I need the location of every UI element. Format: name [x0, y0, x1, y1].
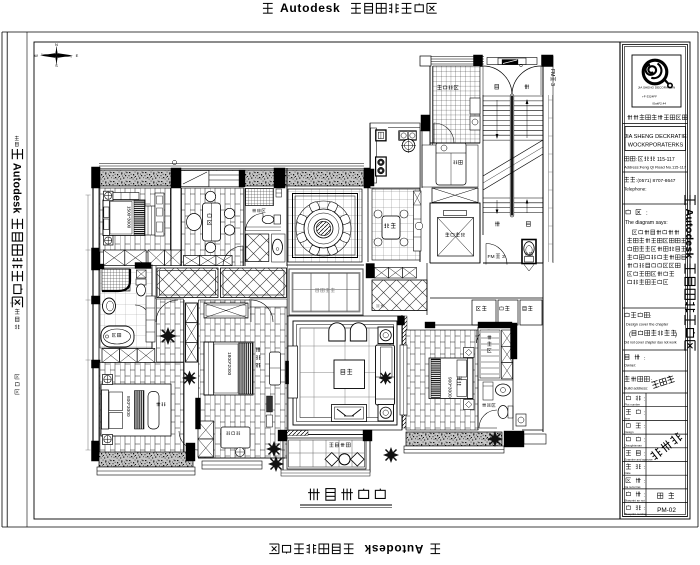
svg-text:JIA SHENG DECKRATIE: JIA SHENG DECKRATIE: [624, 134, 687, 140]
svg-text:Design: Design: [625, 430, 634, 434]
svg-text:W: W: [34, 53, 38, 58]
svg-text:The diagram says:: The diagram says:: [625, 220, 668, 226]
svg-text:Autodesk: Autodesk: [364, 542, 423, 556]
svg-text::: :: [644, 424, 645, 430]
svg-text:S: S: [55, 63, 58, 68]
svg-text::: :: [644, 410, 645, 416]
svg-text::: :: [644, 438, 645, 444]
svg-text:Item: Item: [625, 416, 631, 420]
svg-text:800*3000: 800*3000: [125, 396, 131, 417]
svg-text:N: N: [55, 42, 58, 47]
svg-text:Draughtsman: Draughtsman: [625, 444, 643, 448]
svg-text:Owner:: Owner:: [624, 364, 636, 368]
svg-text:E: E: [76, 53, 79, 58]
svg-text:1800*2000: 1800*2000: [226, 352, 232, 376]
svg-text:Autodesk: Autodesk: [10, 163, 22, 214]
svg-text:Examine and approve: Examine and approve: [625, 457, 654, 461]
svg-text::: :: [636, 157, 637, 163]
svg-text:Design cover the chapter: Design cover the chapter: [626, 323, 669, 327]
svg-text:FM: FM: [488, 254, 495, 260]
svg-text:): ): [675, 332, 677, 338]
svg-text:115-117: 115-117: [657, 157, 675, 163]
svg-text::: :: [644, 479, 645, 485]
svg-text:900*3000: 900*3000: [447, 377, 453, 398]
svg-text:Telephone:: Telephone:: [624, 187, 646, 192]
svg-text:FM: FM: [549, 69, 555, 77]
svg-text:1500*3000: 1500*3000: [127, 206, 132, 229]
svg-text:Did not cover chapter dao not: Did not cover chapter dao not work: [624, 341, 677, 345]
svg-text:Da ra for fas: Da ra for fas: [625, 485, 641, 489]
svg-text:Autodesk: Autodesk: [280, 1, 341, 15]
svg-text:JIA SHENG DECORAT ON: JIA SHENG DECORAT ON: [638, 86, 675, 90]
svg-text::(0571) 8707-8647: :(0571) 8707-8647: [636, 178, 676, 184]
svg-text:Date: Date: [625, 471, 631, 475]
svg-text:3: 3: [502, 254, 505, 260]
svg-text:Address:Feng Qi Road No.115-11: Address:Feng Qi Road No.115-117: [624, 165, 687, 170]
svg-text:Blueprint number: Blueprint number: [625, 512, 647, 516]
svg-text:+F-3324FF: +F-3324FF: [642, 95, 657, 99]
svg-text:Blueprint an not: Blueprint an not: [625, 499, 645, 503]
svg-text::: :: [644, 397, 645, 403]
svg-text::: :: [644, 465, 645, 471]
svg-text:Plot number: Plot number: [625, 403, 641, 407]
svg-text:WOCKRPORATERKS: WOCKRPORATERKS: [628, 143, 684, 149]
svg-text:3: 3: [549, 83, 555, 86]
svg-text:\GakF2.44: \GakF2.44: [652, 102, 666, 106]
svg-text:Build address:: Build address:: [624, 387, 648, 391]
svg-text:(: (: [629, 332, 631, 338]
svg-text:PM-02: PM-02: [657, 507, 676, 514]
